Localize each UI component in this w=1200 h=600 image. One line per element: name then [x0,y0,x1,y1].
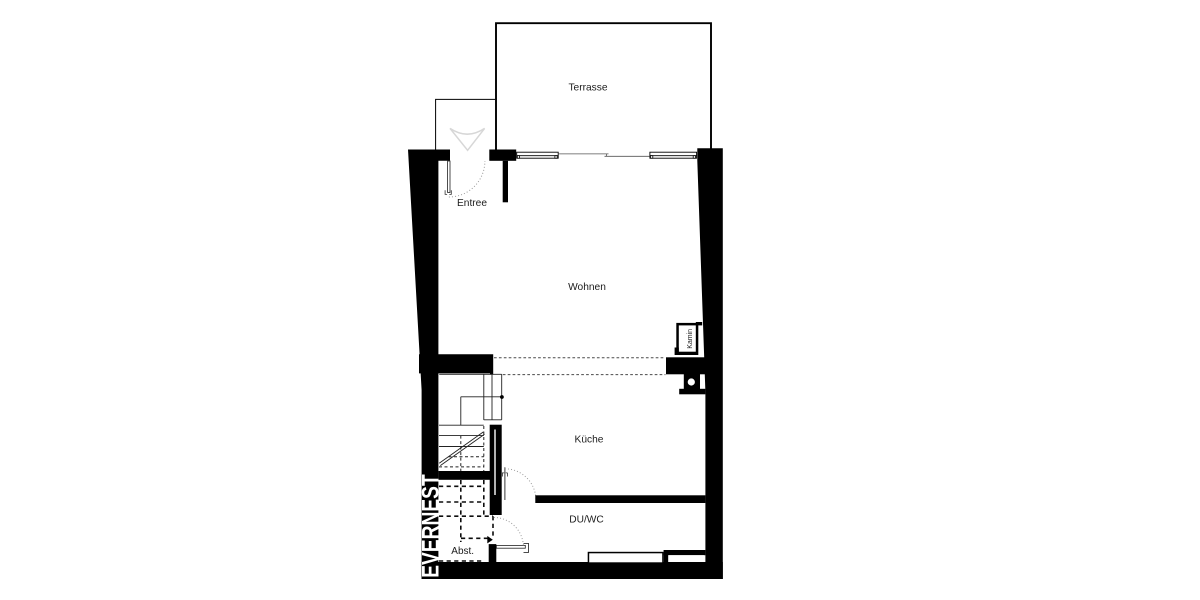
svg-text:EVERNEST: EVERNEST [418,474,445,578]
svg-text:Terrasse: Terrasse [568,83,607,94]
svg-text:DU/WC: DU/WC [569,515,604,526]
svg-text:Wohnen: Wohnen [568,282,606,293]
svg-text:Küche: Küche [575,435,604,446]
svg-text:Entree: Entree [457,198,487,209]
svg-text:Kamin: Kamin [687,329,694,349]
svg-text:Abst.: Abst. [451,546,474,557]
